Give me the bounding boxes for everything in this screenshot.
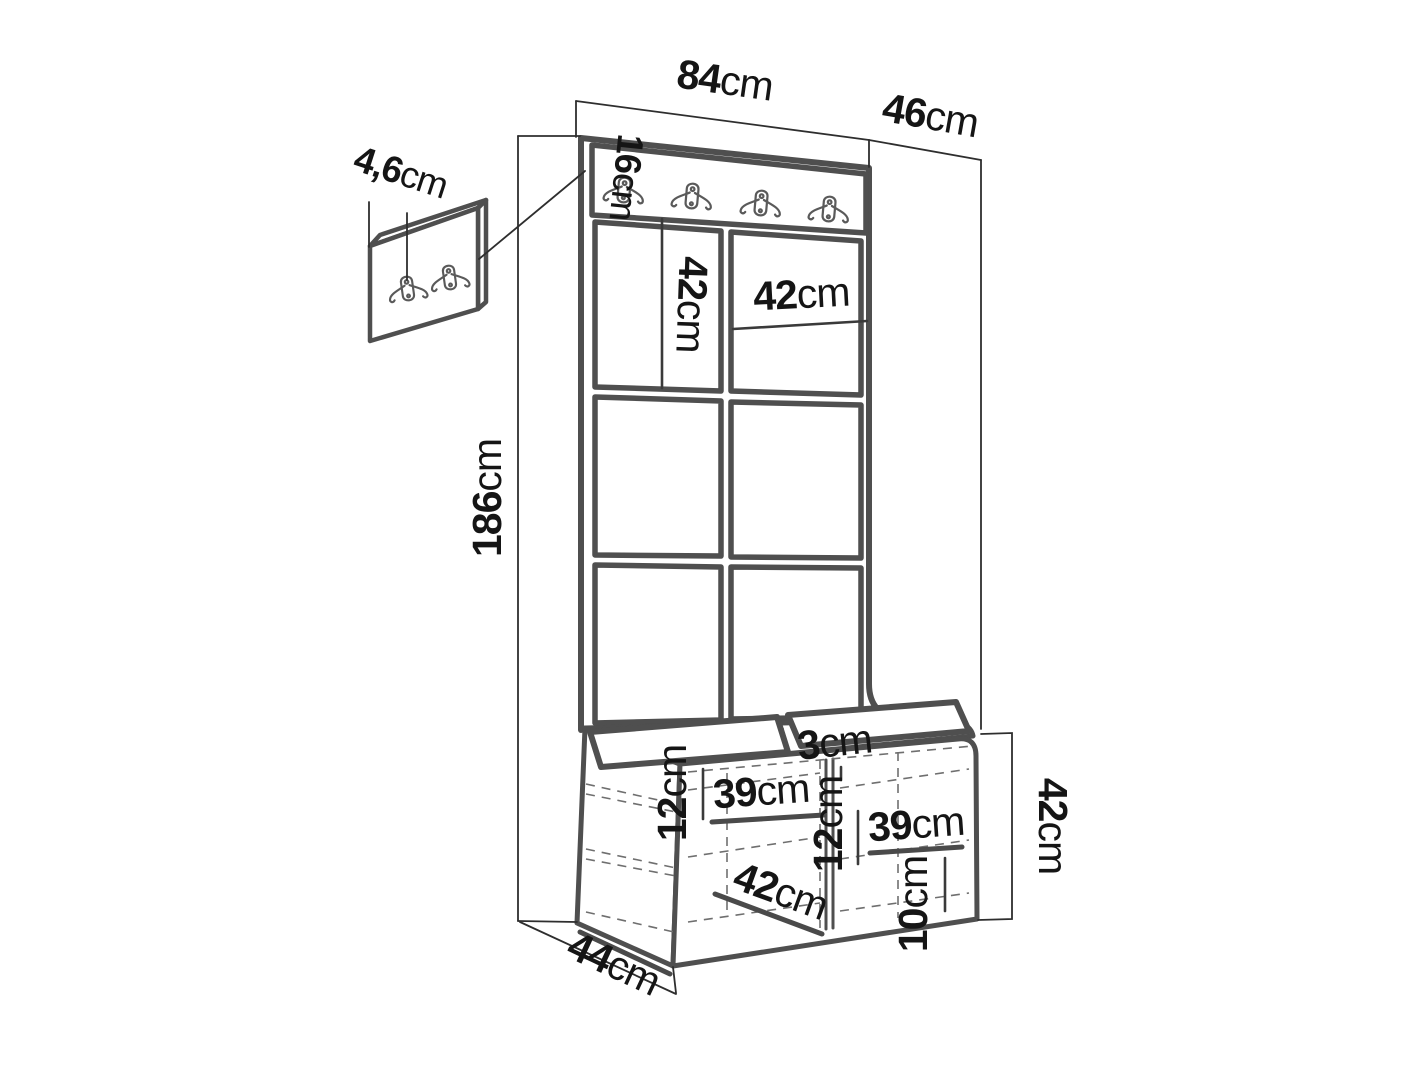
dim-hook-panel-thickness-label: 4,6cm: [349, 138, 453, 207]
tile-width-dim-line: [733, 321, 867, 329]
small-panel-front: [370, 208, 478, 341]
wall-panel-group: [581, 138, 903, 730]
dim-right-shelf-drop-label: 12cm: [805, 776, 851, 872]
dim-width-label: 84cm: [674, 51, 776, 110]
dim-left-shelf-width-label: 39cm: [711, 765, 810, 818]
furniture-dimension-diagram: 84cm 46cm 16cm 4,6cm 186cm 42cm 42cm 3cm…: [40, 16, 1408, 1072]
diagram-canvas: 84cm 46cm 16cm 4,6cm 186cm 42cm 42cm 3cm…: [40, 16, 1408, 1072]
dim-right-shelf-width-label: 39cm: [866, 798, 965, 851]
dim-bottom-clearance-label: 10cm: [890, 856, 936, 952]
dim-side-depth-label: 46cm: [879, 84, 982, 146]
leader-line: [479, 171, 585, 259]
dim-cushion-thickness-label: 3cm: [795, 715, 874, 769]
dim-tile-width-label: 42cm: [752, 269, 851, 320]
dim-left-shelf-drop-label: 12cm: [649, 745, 695, 841]
bench-height-bracket: [978, 733, 1012, 920]
dim-bench-height-label: 42cm: [1030, 778, 1076, 874]
dim-tile-height-label: 42cm: [667, 256, 716, 354]
small-hook-panel-group: [370, 200, 486, 341]
dim-total-height-label: 186cm: [464, 439, 510, 557]
